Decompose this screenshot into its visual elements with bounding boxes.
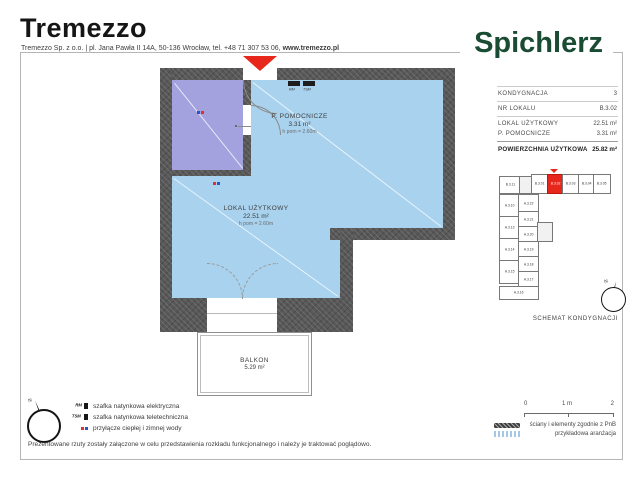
room-height: h pom = 2.60m bbox=[255, 129, 344, 134]
compass-icon: N bbox=[598, 280, 628, 314]
legend-item: ściany i elementy zgodnie z PnB bbox=[494, 422, 616, 428]
drawing-legend: ściany i elementy zgodnie z PnB przykład… bbox=[494, 422, 616, 440]
rm-cabinet-icon bbox=[288, 81, 300, 86]
scale-bar: 0 1 m 2 bbox=[524, 401, 614, 419]
legend-item: przyłącze ciepłej i zimnej wody bbox=[66, 424, 188, 432]
info-row: NR LOKALU B.3.02 bbox=[497, 101, 618, 116]
info-row: P. POMOCNICZE 3.31 m² bbox=[497, 131, 618, 141]
wall bbox=[277, 298, 353, 332]
scale-label: 1 m bbox=[562, 401, 572, 407]
schematic-unit: A.3.16 bbox=[499, 286, 539, 300]
wall bbox=[160, 68, 172, 332]
partition-wall bbox=[172, 170, 251, 176]
arrangement-legend-swatch bbox=[494, 431, 520, 437]
room-label-main: LOKAL UŻYTKOWY 22.51 m² h pom = 2.60m bbox=[196, 205, 316, 227]
info-value: 25.82 m² bbox=[592, 146, 617, 153]
tsm-cabinet-icon bbox=[303, 81, 315, 86]
info-label: P. POMOCNICZE bbox=[498, 131, 550, 137]
room-area: 3.31 m² bbox=[247, 121, 352, 128]
legend-text: szafka natynkowa teletechniczna bbox=[93, 414, 188, 421]
company-logo: Tremezzo bbox=[20, 13, 147, 44]
schematic-unit: A.3.15 bbox=[499, 260, 520, 284]
legend-text: szafka natynkowa elektryczna bbox=[93, 403, 179, 410]
schematic-unit: A.3.10 bbox=[499, 194, 520, 218]
schematic-unit: B.3.11 bbox=[499, 176, 521, 194]
water-connection-icon bbox=[213, 182, 220, 185]
info-row-total: POWIERZCHNIA UŻYTKOWA 25.82 m² bbox=[497, 141, 618, 157]
scale-label: 0 bbox=[524, 401, 527, 407]
balcony-door-sill bbox=[207, 313, 277, 314]
tsm-cabinet-label: TSM bbox=[303, 88, 311, 92]
balcony-label: BALKON 5.29 m² bbox=[200, 335, 309, 393]
info-table: KONDYGNACJA 3 NR LOKALU B.3.02 LOKAL UŻY… bbox=[497, 86, 618, 157]
schematic-unit: A.3.13 bbox=[499, 216, 520, 240]
room-name: LOKAL UŻYTKOWY bbox=[196, 205, 316, 212]
compass-icon: N bbox=[23, 397, 67, 445]
room-name: P. POMOCNICZE bbox=[247, 113, 352, 120]
plan-legend: RM szafka natynkowa elektryczna TSM szaf… bbox=[66, 402, 188, 435]
project-title: Spichlerz bbox=[460, 27, 613, 63]
schematic-unit: A.3.14 bbox=[499, 238, 520, 262]
info-value: B.3.02 bbox=[600, 106, 617, 112]
disclaimer: Prezentowane rzuty zostały załączone w c… bbox=[28, 441, 588, 448]
scale-label: 2 bbox=[611, 401, 614, 407]
room-name: BALKON bbox=[240, 357, 269, 364]
legend-item: przykładowa aranżacja bbox=[494, 431, 616, 437]
legend-text: ściany i elementy zgodnie z PnB bbox=[525, 422, 616, 428]
company-website: www.tremezzo.pl bbox=[283, 45, 340, 52]
wall bbox=[160, 68, 243, 80]
wall bbox=[277, 68, 455, 80]
scale-line bbox=[524, 413, 614, 414]
compass-north-label: N bbox=[604, 279, 609, 285]
company-address: Tremezzo Sp. z o.o. | pl. Jana Pawła II … bbox=[21, 45, 339, 52]
tsm-cabinet-icon: TSM bbox=[66, 414, 88, 420]
info-label: POWIERZCHNIA UŻYTKOWA bbox=[498, 146, 588, 153]
page: Tremezzo Tremezzo Sp. z o.o. | pl. Jana … bbox=[0, 0, 640, 480]
walls-legend-swatch bbox=[494, 423, 520, 428]
address-text: Tremezzo Sp. z o.o. | pl. Jana Pawła II … bbox=[21, 45, 283, 52]
balcony: BALKON 5.29 m² bbox=[197, 332, 312, 396]
legend-text: przykładowa aranżacja bbox=[525, 431, 616, 437]
room-label-auxiliary: P. POMOCNICZE 3.31 m² h pom = 2.60m bbox=[247, 113, 352, 135]
compass-ring bbox=[601, 287, 626, 312]
info-row: KONDYGNACJA 3 bbox=[497, 86, 618, 101]
rm-cabinet-icon: RM bbox=[66, 403, 88, 409]
room-height: h pom = 2.60m bbox=[205, 221, 307, 226]
water-connection-icon bbox=[66, 427, 88, 430]
compass-ring bbox=[27, 409, 61, 443]
rm-cabinet-label: RM bbox=[289, 88, 295, 92]
legend-item: TSM szafka natynkowa teletechniczna bbox=[66, 413, 188, 421]
legend-text: przyłącze ciepłej i zimnej wody bbox=[93, 425, 182, 432]
legend-item: RM szafka natynkowa elektryczna bbox=[66, 402, 188, 410]
compass-north-label: N bbox=[28, 398, 33, 404]
water-connection-icon bbox=[197, 111, 204, 114]
unit-marker-icon bbox=[550, 169, 558, 173]
wall bbox=[443, 68, 455, 240]
info-row: LOKAL UŻYTKOWY 22.51 m² bbox=[497, 116, 618, 131]
schematic-stairs bbox=[537, 222, 553, 242]
info-value: 22.51 m² bbox=[593, 121, 617, 127]
info-label: KONDYGNACJA bbox=[498, 91, 548, 97]
floor-plan: RM TSM P. POMOCNICZE 3.31 m² h pom = 2.6… bbox=[155, 55, 460, 400]
leader-dot bbox=[235, 125, 237, 127]
room-area: 22.51 m² bbox=[196, 213, 316, 220]
info-label: NR LOKALU bbox=[498, 106, 536, 112]
schematic-caption: SCHEMAT KONDYGNACJI bbox=[498, 316, 618, 322]
info-value: 3 bbox=[614, 91, 617, 97]
wall bbox=[160, 298, 207, 332]
entrance-arrow-icon bbox=[243, 56, 277, 71]
schematic-unit: B.3.05 bbox=[593, 174, 611, 194]
info-value: 3.31 m² bbox=[597, 131, 617, 137]
info-label: LOKAL UŻYTKOWY bbox=[498, 121, 558, 127]
room-area: 5.29 m² bbox=[244, 365, 264, 371]
